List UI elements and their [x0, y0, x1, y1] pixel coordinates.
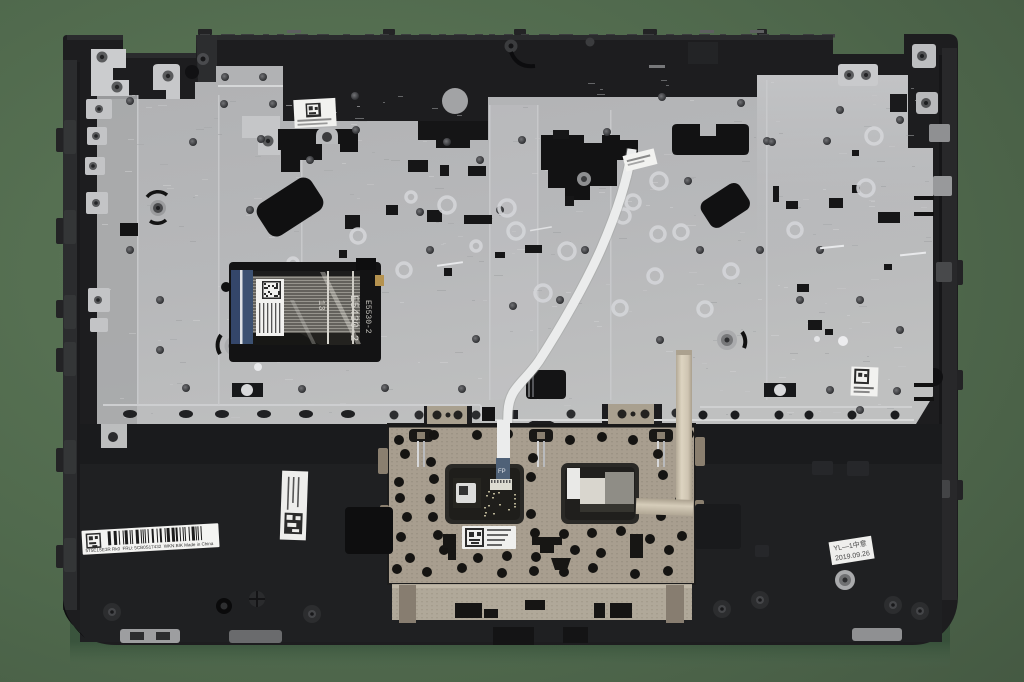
- svg-text:13: 13: [316, 300, 326, 311]
- svg-text:E5430-2: E5430-2: [347, 295, 359, 341]
- svg-text:E5530-2: E5530-2: [363, 300, 372, 334]
- svg-text:FP: FP: [498, 469, 506, 475]
